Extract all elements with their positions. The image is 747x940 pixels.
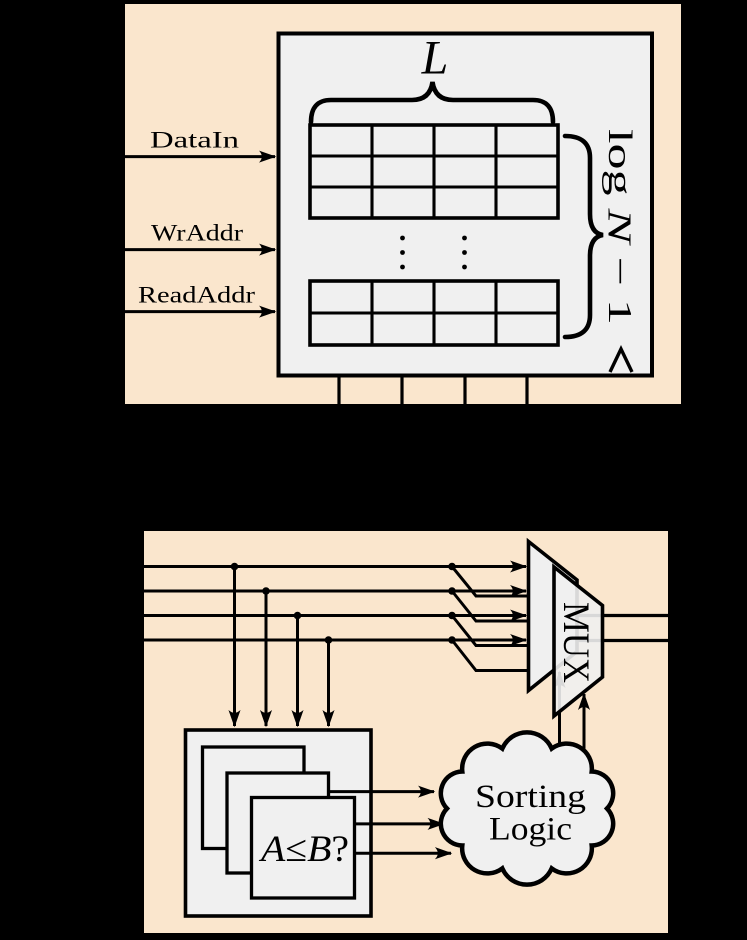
svg-text:Sorting: Sorting [475,779,586,815]
svg-text:L: L [421,32,449,85]
svg-text:MUX: MUX [555,602,596,683]
svg-text:ReadAddr: ReadAddr [138,283,255,308]
svg-text:DataIn: DataIn [150,128,240,153]
svg-text:A≤B?: A≤B? [258,829,349,870]
svg-text:Logic: Logic [489,812,572,848]
svg-text:WrAddr: WrAddr [151,221,243,246]
svg-text:log N − 1: log N − 1 [601,129,638,325]
